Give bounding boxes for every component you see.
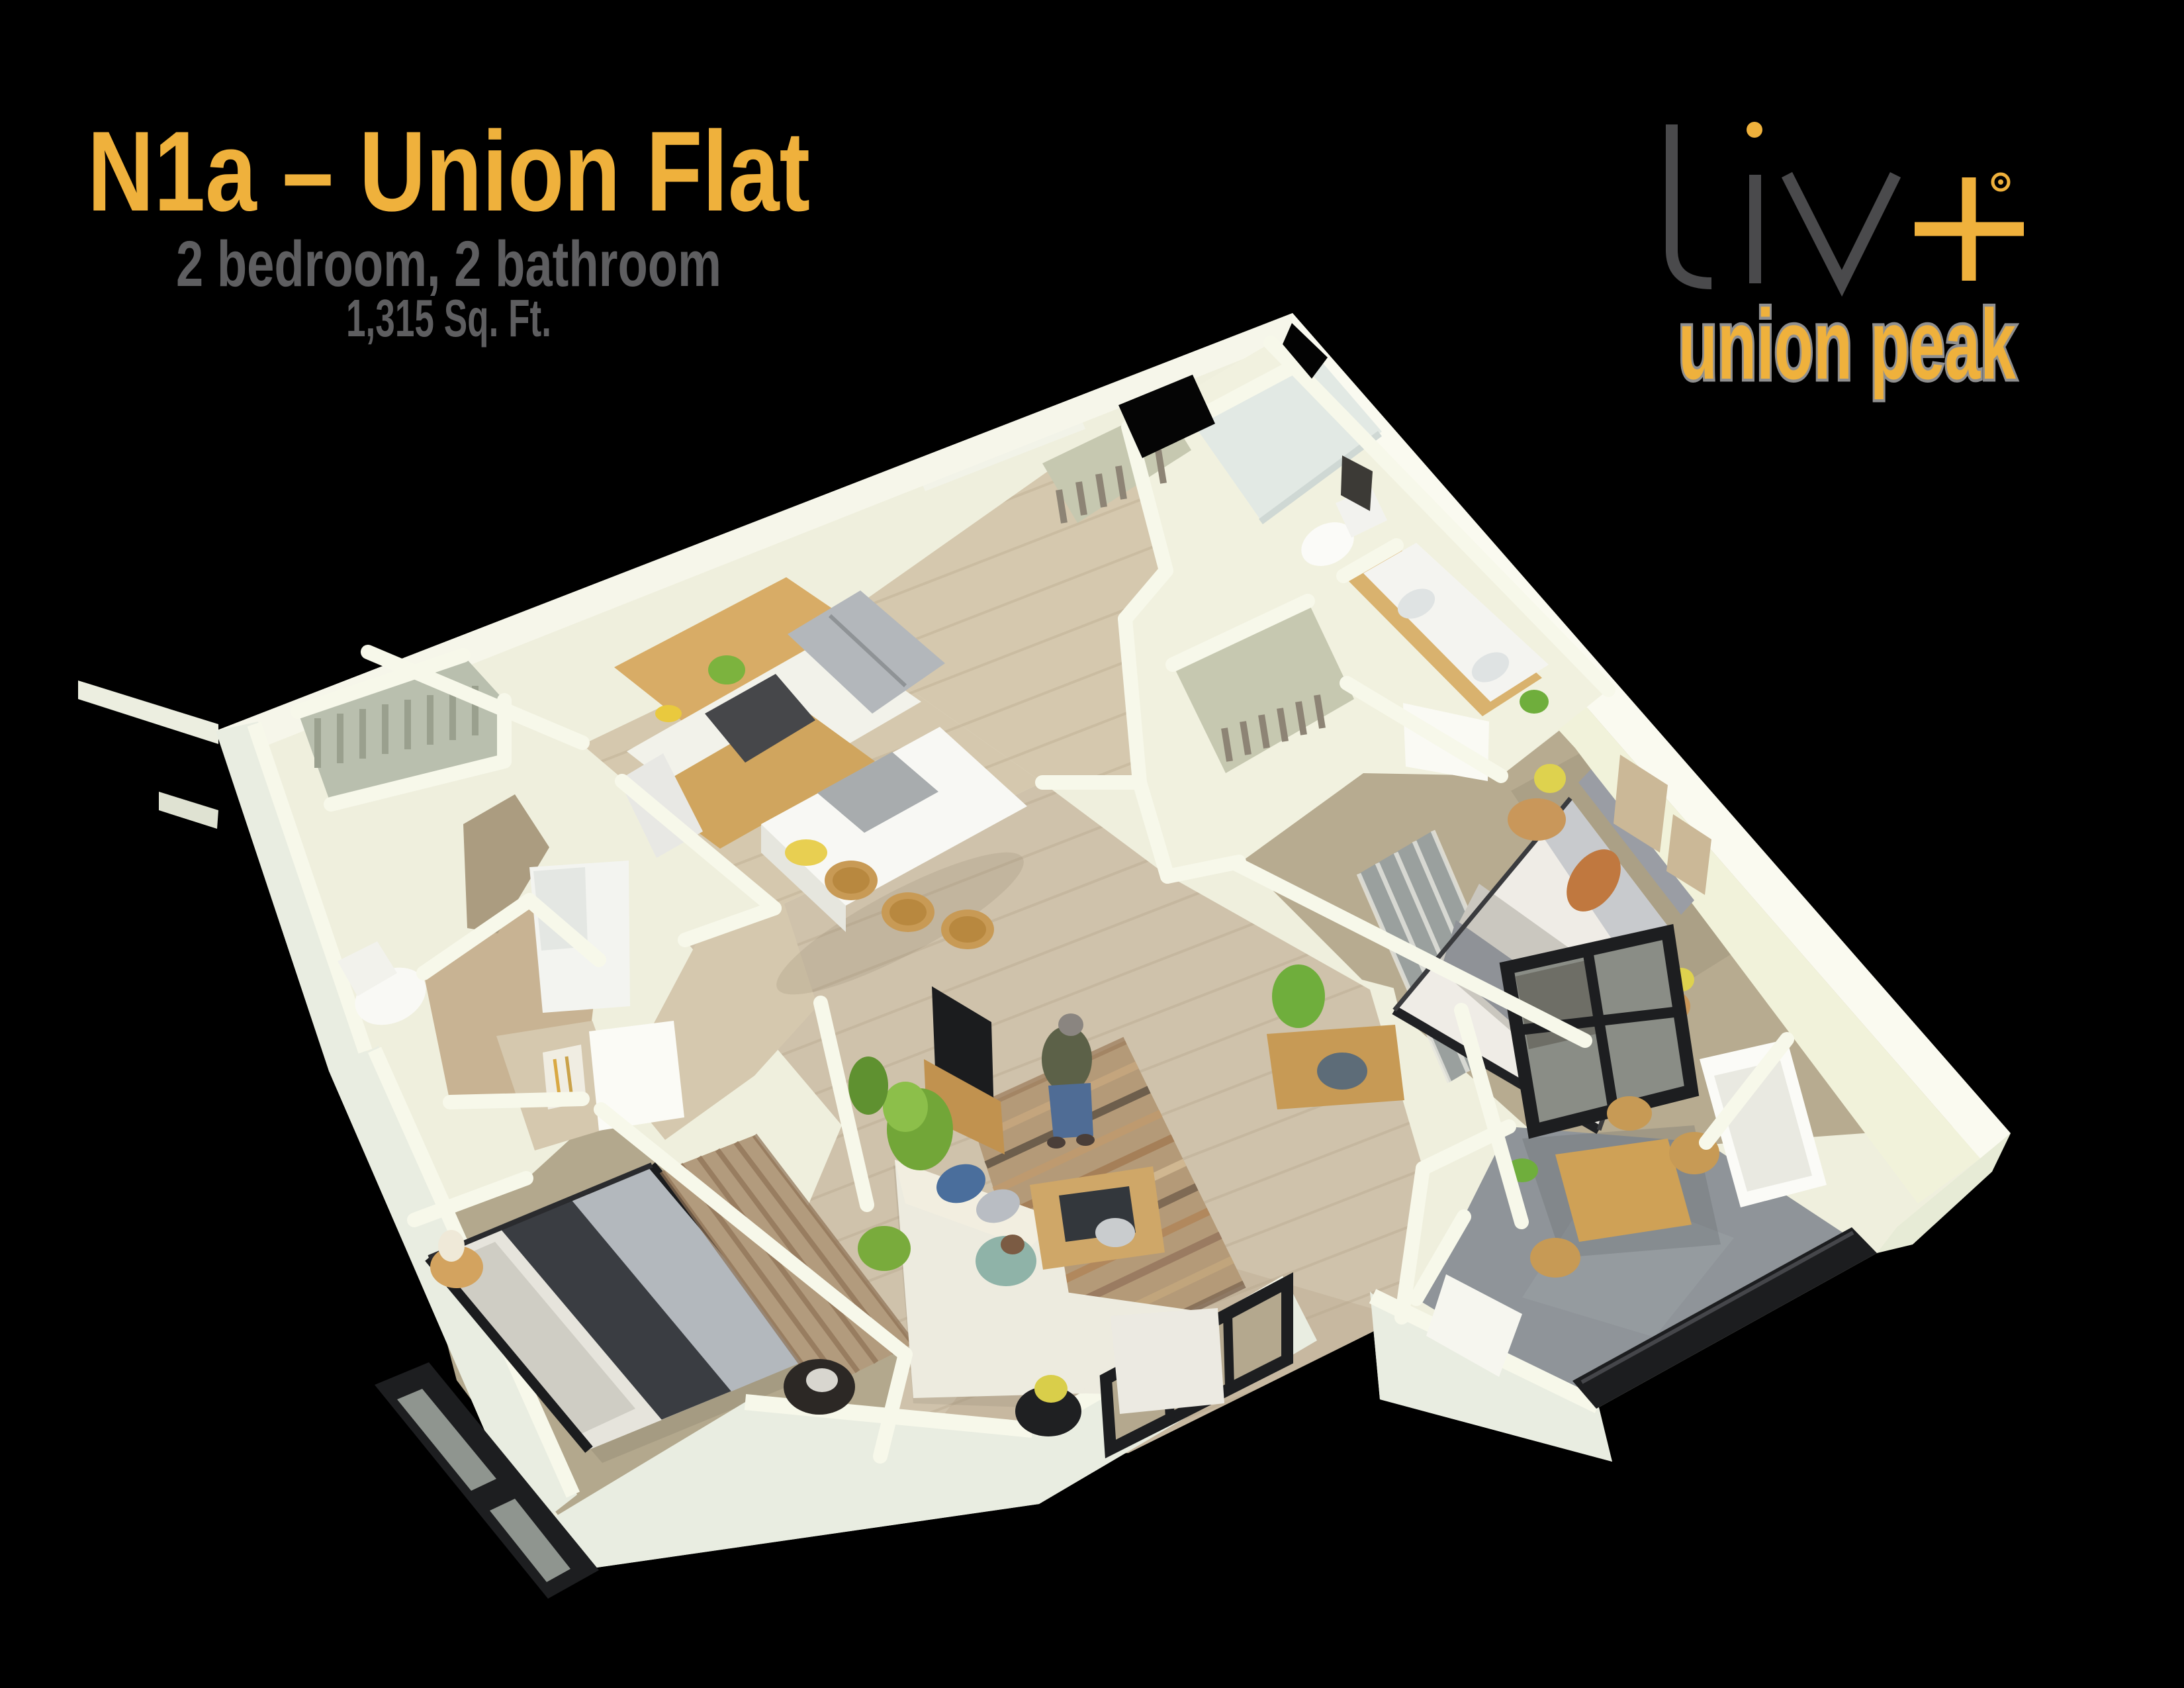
svg-text:union peak: union peak [1678,289,2016,400]
svg-text:N1a – Union Flat: N1a – Union Flat [87,108,810,235]
svg-text:1,315 Sq. Ft.: 1,315 Sq. Ft. [346,289,551,348]
